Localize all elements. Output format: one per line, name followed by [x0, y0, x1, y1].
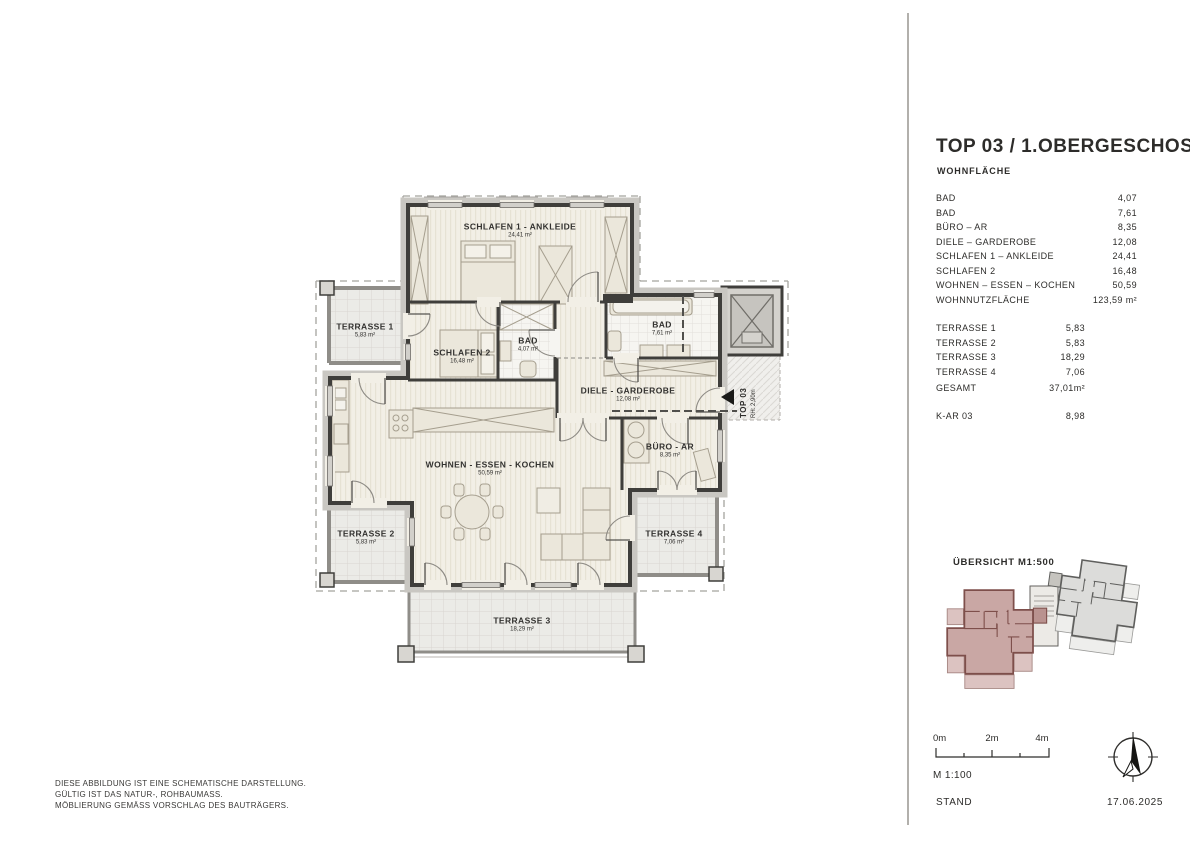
- table-row: TERRASSE 318,29: [936, 350, 1085, 365]
- table-row: TERRASSE 15,83: [936, 321, 1085, 336]
- scalebar-tick-2m: 2m: [985, 733, 998, 744]
- storage-row: K-AR 038,98: [936, 409, 1085, 424]
- disclaimer: DIESE ABBILDUNG IST EINE SCHEMATISCHE DA…: [55, 778, 306, 811]
- scalebar-tick-4m: 4m: [1035, 733, 1048, 744]
- stand-date: 17.06.2025: [1107, 797, 1163, 808]
- stand-row: STAND 17.06.2025: [936, 797, 1163, 808]
- room-label-terrasse4: TERRASSE 47,06 m²: [645, 529, 702, 546]
- table-row: BAD4,07: [936, 191, 1137, 206]
- room-label-diele: DIELE - GARDEROBE12,08 m²: [581, 386, 676, 403]
- table-total-row: GESAMT37,01m²: [936, 381, 1085, 396]
- table-row: SCHLAFEN 216,48: [936, 264, 1137, 279]
- room-label-bad-small: BAD4,07 m²: [518, 336, 538, 353]
- table-row: SCHLAFEN 1 – ANKLEIDE24,41: [936, 249, 1137, 264]
- room-label-buero: BÜRO - AR8,35 m²: [646, 442, 694, 459]
- elevator: [722, 287, 782, 355]
- entrance-height-label: RH: 2,90m: [751, 389, 757, 418]
- room-label-terrasse1: TERRASSE 15,83 m²: [336, 322, 393, 339]
- scalebar-tick-0m: 0m: [933, 733, 946, 744]
- scale-label: M 1:100: [933, 770, 972, 781]
- table-row: BÜRO – AR8,35: [936, 220, 1137, 235]
- wohnflaeche-label: WOHNFLÄCHE: [937, 166, 1011, 176]
- overview-label: ÜBERSICHT M1:500: [953, 557, 1054, 568]
- terrace-2: [320, 505, 408, 587]
- room-area-table: BAD4,07 BAD7,61 BÜRO – AR8,35 DIELE – GA…: [936, 191, 1137, 307]
- bed-schlafen1: [461, 241, 515, 303]
- table-row: TERRASSE 25,83: [936, 336, 1085, 351]
- scale-bar: [936, 748, 1049, 757]
- room-label-terrasse3: TERRASSE 318,29 m²: [493, 616, 550, 633]
- table-row: TERRASSE 47,06: [936, 365, 1085, 380]
- disclaimer-line: MÖBLIERUNG GEMÄSS VORSCHLAG DES BAUTRÄGE…: [55, 800, 306, 811]
- room-label-schlafen1: SCHLAFEN 1 - ANKLEIDE24,41 m²: [464, 222, 576, 239]
- table-total-row: WOHNNUTZFLÄCHE123,59 m²: [936, 293, 1137, 308]
- terrace-area-table: TERRASSE 15,83 TERRASSE 25,83 TERRASSE 3…: [936, 321, 1085, 423]
- stand-label: STAND: [936, 797, 972, 808]
- disclaimer-line: GÜLTIG IST DAS NATUR-, ROHBAUMASS.: [55, 789, 306, 800]
- entrance-top-label: TOP 03: [739, 388, 748, 418]
- table-row: BAD7,61: [936, 206, 1137, 221]
- room-label-wohnen: WOHNEN - ESSEN - KOCHEN50,59 m²: [426, 460, 555, 477]
- table-row: WOHNEN – ESSEN – KOCHEN50,59: [936, 278, 1137, 293]
- page-title: TOP 03 / 1.OBERGESCHOSS: [936, 136, 1190, 158]
- table-row: DIELE – GARDEROBE12,08: [936, 235, 1137, 250]
- panel-divider: [907, 13, 909, 825]
- north-compass-icon: [1108, 732, 1158, 782]
- overview-map: [947, 556, 1142, 689]
- disclaimer-line: DIESE ABBILDUNG IST EINE SCHEMATISCHE DA…: [55, 778, 306, 789]
- room-label-bad-big: BAD7,61 m²: [652, 320, 672, 337]
- floorplan-page: { "page": { "background": "#ffffff", "wa…: [0, 0, 1190, 841]
- room-label-terrasse2: TERRASSE 25,83 m²: [337, 529, 394, 546]
- room-label-schlafen2: SCHLAFEN 216,48 m²: [433, 348, 490, 365]
